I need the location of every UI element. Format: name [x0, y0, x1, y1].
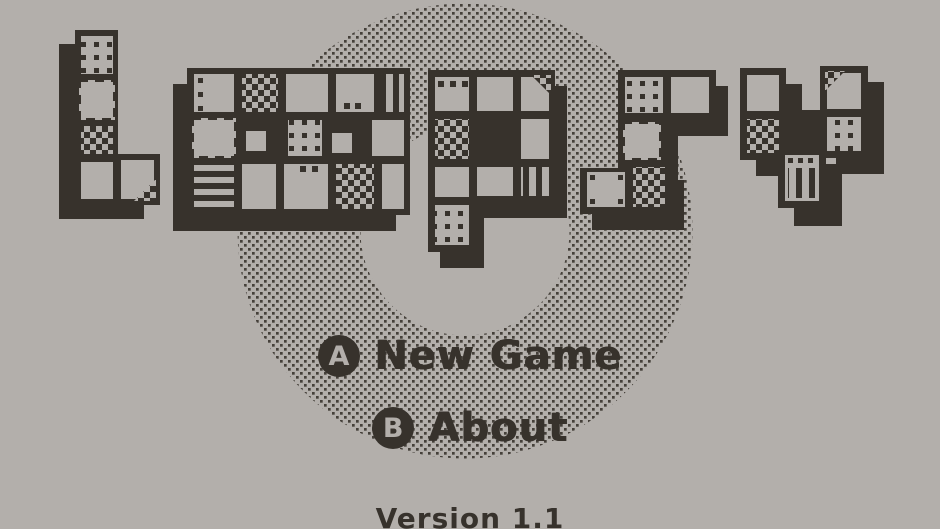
- game-screen: A New Game B About Version 1.1: [0, 0, 940, 529]
- a-button-icon: A: [318, 335, 360, 377]
- title-letter-p: [428, 70, 567, 268]
- b-button-icon: B: [372, 407, 414, 449]
- menu-item-about[interactable]: B About: [0, 406, 940, 450]
- title-letter-oo: [173, 68, 410, 231]
- o-counter-1: [246, 131, 266, 151]
- menu-item-label: New Game: [374, 334, 622, 378]
- version-label: Version 1.1: [0, 502, 940, 529]
- menu-item-new-game[interactable]: A New Game: [0, 334, 940, 378]
- menu-item-label: About: [428, 406, 568, 450]
- o-counter-2: [332, 133, 352, 153]
- title-letter-y: [740, 66, 884, 226]
- title-letter-l: [59, 30, 160, 219]
